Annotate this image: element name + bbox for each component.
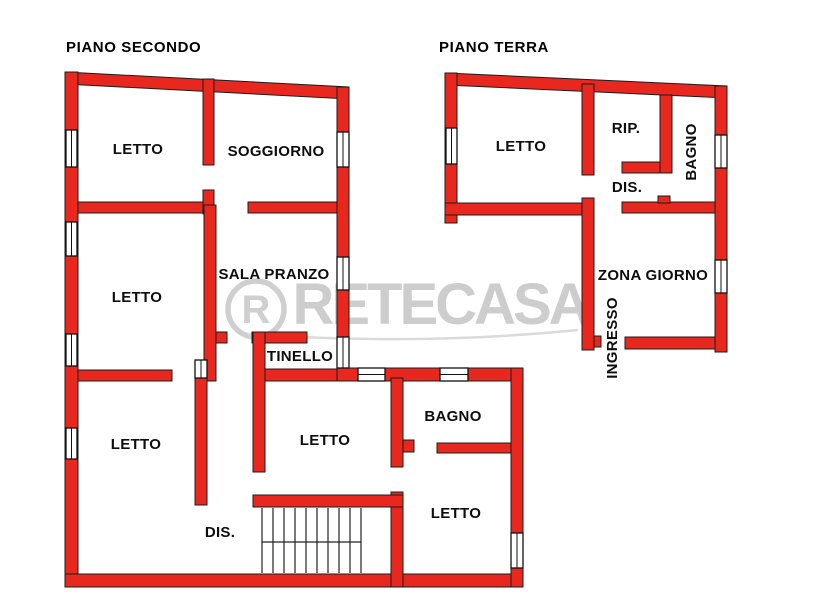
wall-bagno-bottom (437, 443, 511, 453)
room-label-rip: RIP. (612, 120, 640, 137)
wall-zona-giorno-top (622, 202, 715, 213)
wall-divider1-right (248, 202, 337, 213)
wall-stairwell-top (253, 495, 403, 507)
plan-title-piano-secondo: PIANO SECONDO (66, 39, 201, 56)
wall-ingresso-jamb (594, 336, 601, 347)
watermark-logo-letter: R (242, 288, 271, 332)
window (66, 130, 77, 167)
room-label-dis-secondo: DIS. (205, 524, 235, 541)
room-label-bagno-terra: BAGNO (683, 123, 700, 180)
wall-tinello-jamb (216, 332, 227, 343)
wall-bagno-left (660, 95, 672, 173)
room-label-sala-pranzo: SALA PRANZO (218, 266, 329, 283)
floorplan-svg: R RETECASA PIANO SECONDO (0, 0, 818, 613)
window (511, 533, 523, 568)
window (66, 428, 77, 459)
wall-tinello-left (253, 332, 265, 472)
window (446, 128, 457, 164)
wall-tinello-bottom (265, 369, 337, 381)
wall-divider2 (78, 370, 172, 381)
window (715, 260, 727, 293)
room-label-letto-sudovest: LETTO (111, 436, 161, 453)
window (440, 368, 468, 381)
room-label-letto-sudest: LETTO (431, 505, 481, 522)
room-label-bagno-secondo: BAGNO (424, 408, 481, 425)
wall-middle-lower (582, 198, 594, 350)
wall-bagno-door-jamb (403, 440, 414, 452)
room-label-ingresso: INGRESSO (604, 297, 621, 379)
wall-middle-upper (582, 84, 594, 175)
wall-sala-pranzo-left (204, 205, 216, 381)
wall-bottom (65, 574, 523, 587)
wall-letto-soggiorno (203, 79, 214, 165)
window (358, 368, 385, 381)
wall-rip-bottom (622, 162, 663, 173)
staircase (262, 508, 361, 573)
window (66, 334, 77, 366)
wall-letto-bottom (445, 203, 594, 215)
window (715, 135, 727, 168)
floorplan-canvas: R RETECASA PIANO SECONDO (0, 0, 818, 613)
window (337, 337, 349, 368)
room-label-dis-terra: DIS. (612, 179, 642, 196)
room-label-letto-ovest: LETTO (112, 289, 162, 306)
wall-bottom (625, 337, 715, 349)
plan-title-piano-terra: PIANO TERRA (439, 39, 549, 56)
wall-right (715, 86, 727, 352)
room-label-letto-terra: LETTO (496, 138, 546, 155)
room-label-letto-nordovest: LETTO (113, 141, 163, 158)
wall-right-upper (337, 87, 349, 370)
wall-disimpegno-left (195, 378, 207, 505)
window (66, 222, 77, 256)
room-label-zona-giorno: ZONA GIORNO (598, 267, 708, 284)
door-frame (195, 360, 207, 378)
room-label-soggiorno: SOGGIORNO (228, 143, 325, 160)
wall-bagno-door-jamb (658, 196, 670, 203)
room-label-tinello: TINELLO (267, 348, 333, 365)
room-label-letto-centrale: LETTO (300, 432, 350, 449)
wall-bagno-left (391, 378, 403, 467)
window (337, 257, 349, 290)
window (337, 132, 349, 167)
wall-divider1-left (78, 202, 203, 213)
